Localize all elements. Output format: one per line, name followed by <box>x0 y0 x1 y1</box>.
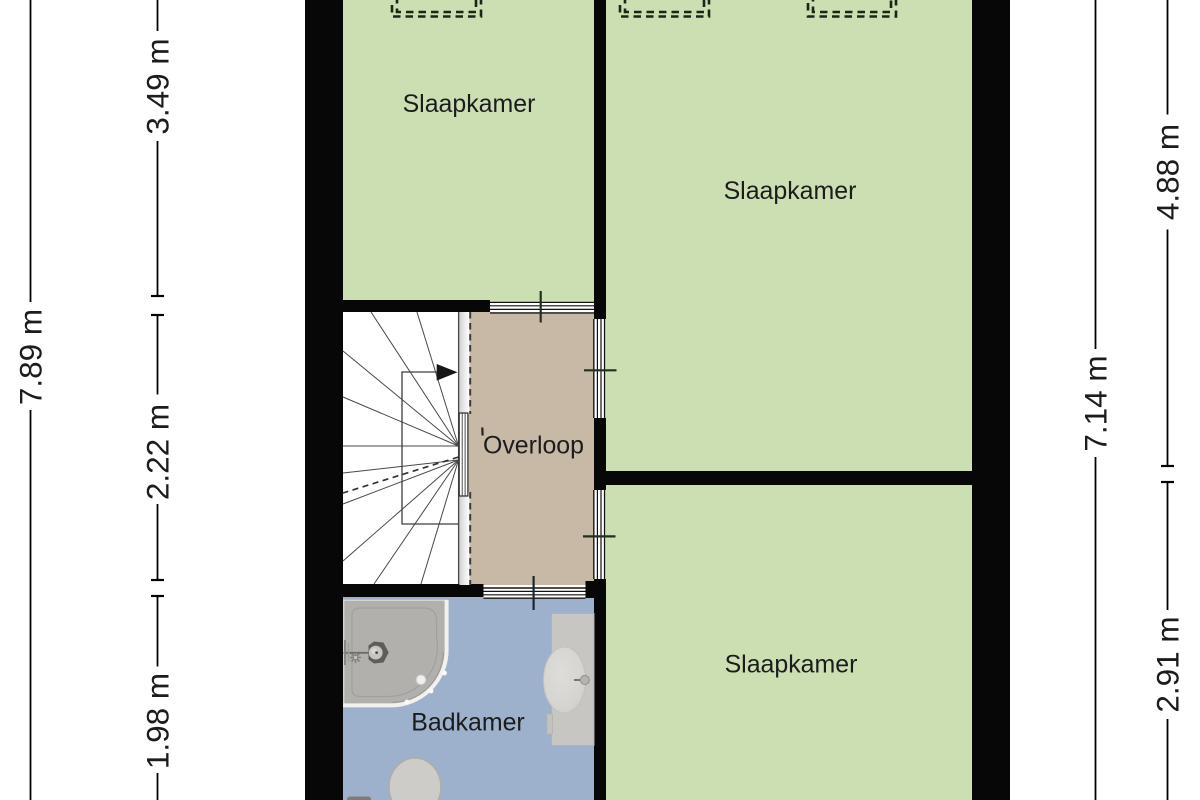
svg-text:2.22 m: 2.22 m <box>140 404 176 500</box>
svg-text:7.14 m: 7.14 m <box>1078 355 1114 451</box>
svg-text:Slaapkamer: Slaapkamer <box>725 651 858 679</box>
svg-text:4.88 m: 4.88 m <box>1150 124 1186 220</box>
svg-text:Badkamer: Badkamer <box>411 709 524 737</box>
svg-text:2.91 m: 2.91 m <box>1150 616 1186 712</box>
svg-text:Slaapkamer: Slaapkamer <box>724 177 857 205</box>
svg-text:1.98 m: 1.98 m <box>140 673 176 769</box>
svg-text:Overloop: Overloop <box>483 432 584 460</box>
svg-text:3.49 m: 3.49 m <box>140 38 176 134</box>
svg-text:Slaapkamer: Slaapkamer <box>403 90 536 118</box>
svg-text:7.89 m: 7.89 m <box>13 309 49 405</box>
